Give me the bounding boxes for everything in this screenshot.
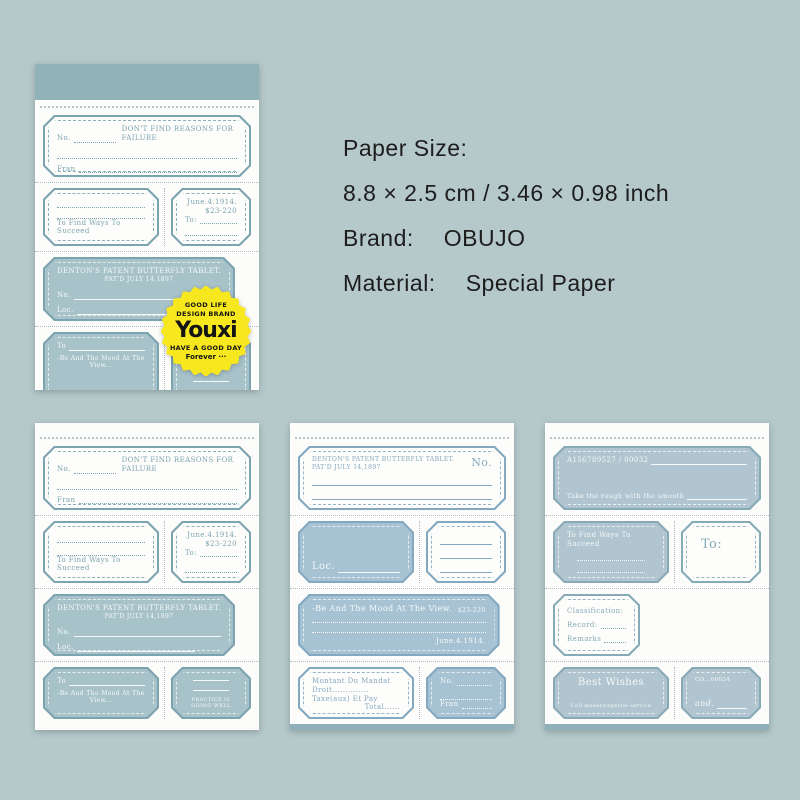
label-failure: No.DON'T FIND REASONS FOR FAILURE Fran	[43, 446, 251, 510]
label-serial-text: A156789527 / 00032	[567, 456, 648, 465]
solid-line	[651, 457, 747, 465]
label-to-text: To:	[701, 537, 747, 553]
dotted-line	[200, 216, 237, 224]
row-separator	[290, 515, 514, 516]
spec-material-line: Material: Special Paper	[343, 261, 669, 306]
dotted-line	[57, 208, 145, 218]
label-blank-lines	[426, 521, 506, 583]
pad4-row3: Classification: Record: Remarks	[545, 594, 769, 656]
label-and-text: and.	[695, 699, 714, 709]
dotted-line	[577, 559, 645, 562]
label-fran-text: Fran	[440, 700, 459, 709]
label-no-text: No.	[57, 465, 71, 474]
label-denton-sub: PAT'D JULY 14,1897	[57, 613, 221, 621]
label-practice-text: PRACTICE IS GOING WELL	[185, 390, 237, 391]
dotted-line	[57, 531, 145, 543]
label-loc: Loc.	[298, 521, 414, 583]
notepad-bottom-middle: DENTON'S PATENT BUTTERFLY TABLET. PAT'D …	[290, 423, 514, 730]
label-mood: To -Be And The Mood At The View...	[43, 332, 159, 390]
dotted-line	[601, 621, 627, 629]
label-no-text: No.	[57, 291, 71, 300]
sticker-line3: HAVE A GOOD DAY	[170, 344, 242, 352]
label-denton-title: DENTON'S PATENT BUTTERFLY TABLET.	[57, 604, 221, 613]
label-no-text: No.	[471, 456, 492, 470]
label-succeed-filled: To Find Ways To Succeed	[553, 521, 669, 583]
label-no-text: No.	[57, 628, 71, 637]
label-price-text: $23-220	[185, 540, 237, 549]
label-date-text: June.4.1914.	[185, 198, 237, 207]
row-separator	[35, 251, 259, 252]
label-to-date: June.4.1914. $23-220 To:	[171, 188, 251, 246]
solid-line	[440, 545, 492, 559]
row-separator	[35, 588, 259, 589]
label-denton-white: DENTON'S PATENT BUTTERFLY TABLET. PAT'D …	[298, 446, 506, 510]
sticker-line2: DESIGN BRAND	[176, 310, 235, 318]
solid-line	[440, 559, 492, 573]
dotted-line	[57, 482, 237, 490]
spec-material-label: Material:	[343, 270, 436, 297]
column-separator	[164, 188, 166, 246]
solid-line	[69, 678, 145, 686]
row-separator	[35, 661, 259, 662]
label-mood-text: -Be And The Mood At The View...	[57, 355, 145, 370]
spec-material-value: Special Paper	[466, 270, 616, 297]
solid-line	[717, 701, 747, 709]
label-mood: To -Be And The Mood At The View...	[43, 667, 159, 719]
dotted-line	[604, 635, 626, 643]
solid-line	[338, 565, 400, 573]
label-date-text: June.4.1914.	[312, 637, 486, 646]
notepad-binding-strip	[35, 64, 259, 100]
pad-back-cover	[545, 724, 769, 730]
perforation-line	[40, 437, 254, 439]
row-separator	[545, 515, 769, 516]
label-mood-text: -Be And The Mood At The View.	[312, 604, 452, 614]
label-denton-title: DENTON'S PATENT BUTTERFLY TABLET.	[57, 267, 221, 276]
label-montant-line1: Montant Du Mandat	[312, 677, 400, 686]
label-fran-text: Fran	[57, 496, 76, 505]
label-no-text: No.	[57, 134, 71, 143]
solid-line	[74, 629, 221, 637]
pad1-row2: To Find Ways To Succeed June.4.1914. $23…	[35, 188, 259, 246]
spec-brand-value: OBUJO	[444, 225, 526, 252]
label-smooth-text: Take the rough with the smooth	[567, 492, 684, 500]
pad2-row1: No.DON'T FIND REASONS FOR FAILURE Fran	[35, 446, 259, 510]
label-loc-text: Loc.	[57, 306, 74, 315]
column-separator	[674, 521, 676, 583]
label-price-text: $23-220	[185, 207, 237, 216]
label-record-text: Record:	[567, 621, 598, 630]
column-separator	[164, 667, 166, 719]
label-to-text: To:	[185, 216, 197, 225]
pad4-row2: To Find Ways To Succeed To:	[545, 521, 769, 583]
dotted-line	[440, 686, 492, 701]
pad3-row1: DENTON'S PATENT BUTTERFLY TABLET. PAT'D …	[290, 446, 514, 510]
dotted-line	[200, 549, 237, 557]
dotted-line	[462, 701, 493, 709]
pad3-row2: Loc.	[290, 521, 514, 583]
dotted-line	[57, 543, 145, 555]
pad2-row3: DENTON'S PATENT BUTTERFLY TABLET. PAT'D …	[35, 594, 259, 656]
pad1-row1: No.DON'T FIND REASONS FOR FAILURE Fran	[35, 115, 259, 177]
label-serial: A156789527 / 00032 Take the rough with t…	[553, 446, 761, 510]
solid-line	[69, 343, 145, 351]
dotted-line	[185, 224, 237, 236]
label-classification: Classification: Record: Remarks	[553, 594, 640, 656]
label-failure: No.DON'T FIND REASONS FOR FAILURE Fran	[43, 115, 251, 177]
label-to-text: To	[57, 677, 66, 686]
product-showcase: Paper Size: 8.8 × 2.5 cm / 3.46 × 0.98 i…	[0, 0, 800, 800]
label-to-white: To:	[681, 521, 761, 583]
solid-line	[312, 479, 492, 486]
row-separator	[290, 588, 514, 589]
dotted-line	[312, 631, 486, 634]
label-mood-text: -Be And The Mood At The View...	[57, 690, 145, 705]
label-loc-text: Loc.	[312, 561, 335, 574]
label-classification-text: Classification:	[567, 607, 623, 616]
label-best-wishes: Best Wishes Call-makers/special-service	[553, 667, 669, 719]
dotted-line	[74, 135, 116, 143]
sticker-text: GOOD LIFE DESIGN BRAND Youxi HAVE A GOOD…	[161, 286, 251, 376]
sticker-line1: GOOD LIFE	[185, 301, 227, 309]
label-no-text: No.	[440, 677, 454, 686]
label-denton-sub: PAT'D JULY 14,1897	[57, 276, 221, 284]
pad-back-cover	[290, 724, 514, 730]
row-separator	[545, 588, 769, 589]
label-practice-text: PRACTICE IS GOING WELL	[185, 697, 237, 710]
label-denton-title: DENTON'S PATENT BUTTERFLY TABLET.	[312, 456, 468, 464]
pad4-row4: Best Wishes Call-makers/special-service …	[545, 667, 769, 719]
label-succeed: To Find Ways To Succeed	[43, 521, 159, 583]
column-separator	[419, 521, 421, 583]
dotted-line	[457, 678, 492, 686]
solid-line	[193, 677, 229, 681]
label-succeed: To Find Ways To Succeed	[43, 188, 159, 246]
label-fran-text: Fran	[57, 165, 76, 174]
dotted-line	[79, 496, 238, 504]
solid-line	[440, 531, 492, 545]
row-separator	[545, 661, 769, 662]
pad3-row4: Montant Du Mandat Droit.............. Ta…	[290, 667, 514, 719]
pad2-row4: To -Be And The Mood At The View... PRACT…	[35, 667, 259, 719]
label-practice: PRACTICE IS GOING WELL	[171, 667, 251, 719]
dotted-line	[577, 570, 645, 573]
perforation-line	[550, 437, 764, 439]
solid-line	[312, 494, 492, 501]
column-separator	[674, 667, 676, 719]
solid-line	[77, 644, 195, 652]
label-mood-big: -Be And The Mood At The View.$23-220 Jun…	[298, 594, 500, 656]
pad3-row3: -Be And The Mood At The View.$23-220 Jun…	[290, 594, 514, 656]
pad4-row1: A156789527 / 00032 Take the rough with t…	[545, 446, 769, 510]
dotted-line	[312, 620, 486, 623]
label-date-text: June.4.1914.	[185, 531, 237, 540]
label-succeed-text: To Find Ways To Succeed	[57, 219, 145, 237]
spec-paper-size-title: Paper Size:	[343, 126, 669, 171]
label-to-text: To:	[185, 549, 197, 558]
solid-line	[687, 492, 747, 500]
dotted-line	[57, 151, 237, 159]
column-separator	[164, 521, 166, 583]
row-separator	[35, 515, 259, 516]
label-co: CO...00034 and.	[681, 667, 761, 719]
row-separator	[290, 661, 514, 662]
label-succeed-text: To Find Ways To Succeed	[57, 556, 145, 574]
sticker-line4: Forever ···	[186, 353, 227, 361]
perforation-line	[40, 106, 254, 108]
solid-line	[193, 687, 229, 691]
label-co-text: CO...00034	[695, 677, 747, 684]
sticker-brand: Youxi	[175, 319, 236, 342]
label-montant-line2: Droit..............	[312, 686, 400, 695]
label-price-text: $23-220	[458, 607, 486, 615]
dotted-line	[185, 557, 237, 573]
label-denton: DENTON'S PATENT BUTTERFLY TABLET. PAT'D …	[43, 594, 235, 656]
label-slogan-text: DON'T FIND REASONS FOR FAILURE	[122, 456, 237, 474]
label-no-fran: No. Fran	[426, 667, 506, 719]
label-service-text: Call-makers/special-service	[567, 703, 655, 709]
spec-brand-label: Brand:	[343, 225, 414, 252]
notepad-bottom-right: A156789527 / 00032 Take the rough with t…	[545, 423, 769, 730]
pad2-row2: To Find Ways To Succeed June.4.1914. $23…	[35, 521, 259, 583]
label-to-text: To	[57, 342, 66, 351]
spec-brand-line: Brand: OBUJO	[343, 216, 669, 261]
label-montant: Montant Du Mandat Droit.............. Ta…	[298, 667, 414, 719]
row-separator	[35, 182, 259, 183]
perforation-line	[295, 437, 509, 439]
label-montant-total: Total......	[312, 703, 400, 712]
label-slogan-text: DON'T FIND REASONS FOR FAILURE	[122, 125, 237, 143]
label-wishes-text: Best Wishes	[567, 677, 655, 690]
dotted-line	[74, 466, 116, 474]
product-specs: Paper Size: 8.8 × 2.5 cm / 3.46 × 0.98 i…	[343, 126, 669, 306]
dotted-line	[79, 165, 238, 173]
column-separator	[419, 667, 421, 719]
label-denton-sub: PAT'D JULY 14,1897	[312, 464, 468, 472]
label-montant-line3: Taxe(aux) Et Pay	[312, 695, 400, 704]
spec-paper-size-value: 8.8 × 2.5 cm / 3.46 × 0.98 inch	[343, 171, 669, 216]
label-succeed-text: To Find Ways To Succeed	[567, 531, 655, 549]
label-to-date: June.4.1914. $23-220 To:	[171, 521, 251, 583]
youxi-sticker: GOOD LIFE DESIGN BRAND Youxi HAVE A GOOD…	[161, 286, 251, 376]
dotted-line	[57, 198, 145, 208]
notepad-bottom-left: No.DON'T FIND REASONS FOR FAILURE Fran T…	[35, 423, 259, 730]
label-remarks-text: Remarks	[567, 635, 601, 644]
label-loc-text: Loc.	[57, 643, 74, 652]
